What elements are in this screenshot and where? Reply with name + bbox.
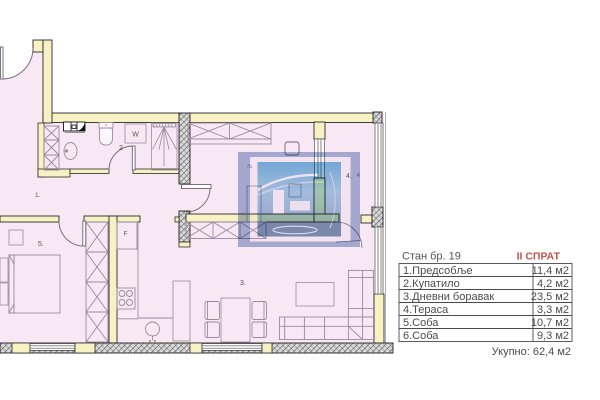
svg-text:Љ: Љ: [247, 164, 253, 170]
svg-text:3,3 м2: 3,3 м2: [537, 304, 569, 316]
svg-text:1.Предсобље: 1.Предсобље: [403, 265, 473, 277]
svg-text:F: F: [124, 231, 128, 238]
svg-text:10,7 м2: 10,7 м2: [531, 317, 569, 329]
svg-text:4,2 м2: 4,2 м2: [537, 278, 569, 290]
svg-text:4.Тераса: 4.Тераса: [403, 304, 449, 316]
svg-text:3.Дневни боравак: 3.Дневни боравак: [403, 291, 494, 303]
svg-text:5.Соба: 5.Соба: [403, 317, 439, 329]
svg-text:2: 2: [119, 145, 123, 152]
svg-text:W: W: [132, 132, 139, 139]
svg-text:2.Купатило: 2.Купатило: [403, 278, 460, 290]
svg-text:23,5 м2: 23,5 м2: [531, 291, 569, 303]
svg-text:1.: 1.: [35, 192, 41, 199]
svg-text:Укупно: 62,4 м2: Укупно: 62,4 м2: [492, 346, 571, 358]
svg-text:6.Соба: 6.Соба: [403, 330, 439, 342]
svg-text:9,3 м2: 9,3 м2: [537, 330, 569, 342]
svg-text:3.: 3.: [240, 280, 246, 287]
svg-text:11,4 м2: 11,4 м2: [532, 265, 569, 277]
svg-text:II СПРАТ: II СПРАТ: [517, 251, 561, 263]
svg-text:5.: 5.: [38, 241, 44, 248]
svg-text:Стан бр. 19: Стан бр. 19: [402, 251, 461, 263]
